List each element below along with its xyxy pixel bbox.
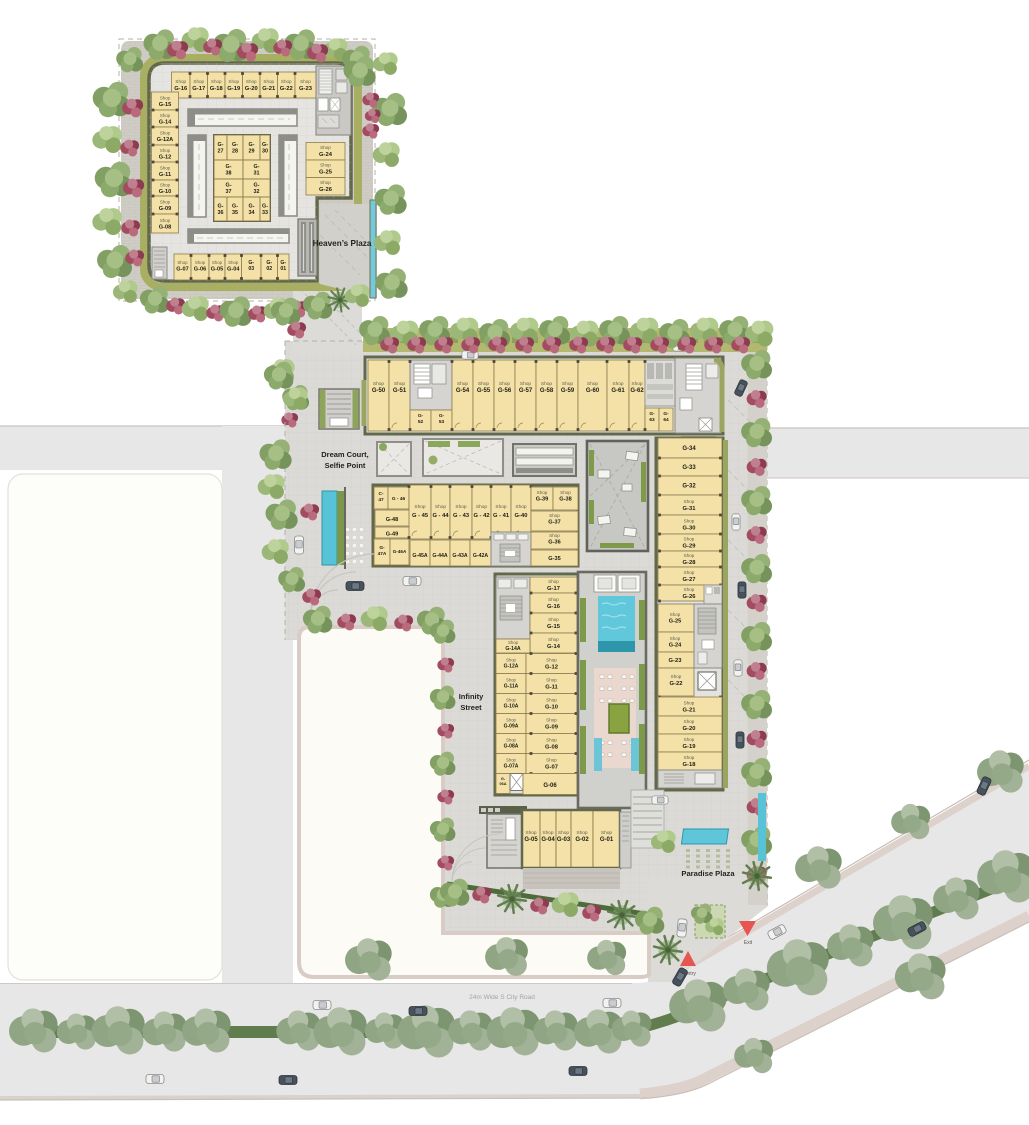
svg-text:63: 63 <box>649 417 655 423</box>
svg-text:Selfie Point: Selfie Point <box>325 461 366 470</box>
svg-text:Street: Street <box>460 703 482 712</box>
svg-text:G-49: G-49 <box>386 532 398 538</box>
svg-text:Shop: Shop <box>508 640 519 645</box>
svg-text:Shop: Shop <box>562 381 574 387</box>
svg-text:Shop: Shop <box>506 758 516 763</box>
svg-text:G-09: G-09 <box>545 724 559 730</box>
svg-text:G-44A: G-44A <box>432 553 448 559</box>
svg-text:Shop: Shop <box>548 617 559 622</box>
svg-text:G-18: G-18 <box>210 86 224 92</box>
svg-text:G-33: G-33 <box>682 465 696 471</box>
svg-text:G-38: G-38 <box>559 497 571 503</box>
svg-text:Shop: Shop <box>684 719 695 724</box>
svg-text:Shop: Shop <box>160 200 171 205</box>
svg-text:G-36: G-36 <box>548 540 560 546</box>
svg-text:27: 27 <box>218 148 224 154</box>
svg-text:G-: G- <box>226 164 232 170</box>
svg-text:G-17: G-17 <box>192 86 205 92</box>
svg-text:Shop: Shop <box>546 698 557 703</box>
svg-text:G-30: G-30 <box>683 525 696 531</box>
svg-text:G - 45: G - 45 <box>412 513 429 519</box>
svg-text:Shop: Shop <box>457 381 469 387</box>
svg-text:Shop: Shop <box>541 381 553 387</box>
svg-text:G - 41: G - 41 <box>493 513 510 519</box>
svg-text:Shop: Shop <box>195 260 206 265</box>
svg-text:Dream Court,: Dream Court, <box>321 450 369 459</box>
svg-text:G-46A: G-46A <box>393 549 407 554</box>
svg-text:Shop: Shop <box>414 504 426 510</box>
svg-text:Shop: Shop <box>506 678 516 683</box>
svg-text:Shop: Shop <box>684 701 695 706</box>
svg-text:G-11: G-11 <box>159 172 171 178</box>
svg-text:G-: G- <box>379 545 385 551</box>
svg-text:Shop: Shop <box>435 504 447 510</box>
svg-text:Shop: Shop <box>160 183 171 188</box>
svg-text:37: 37 <box>226 189 232 195</box>
svg-text:G-25: G-25 <box>669 619 681 625</box>
svg-text:Shop: Shop <box>495 504 507 510</box>
svg-text:Shop: Shop <box>546 678 557 683</box>
svg-text:Shop: Shop <box>546 718 557 723</box>
svg-text:G - 42: G - 42 <box>473 513 489 519</box>
svg-text:Shop: Shop <box>670 636 681 641</box>
svg-text:Shop: Shop <box>320 163 331 168</box>
svg-text:G-23: G-23 <box>299 86 313 92</box>
svg-text:G-39: G-39 <box>536 497 548 503</box>
svg-text:G-: G- <box>266 260 272 266</box>
svg-text:28: 28 <box>232 148 238 154</box>
svg-text:G-37: G-37 <box>548 520 560 526</box>
svg-text:Shop: Shop <box>601 830 613 836</box>
svg-text:G-14: G-14 <box>547 644 561 650</box>
svg-text:G-35: G-35 <box>548 556 560 562</box>
svg-text:G-50: G-50 <box>372 388 386 394</box>
svg-text:G-16: G-16 <box>547 604 561 610</box>
svg-text:G-: G- <box>232 142 238 148</box>
svg-text:Shop: Shop <box>549 513 560 518</box>
svg-text:G-58: G-58 <box>540 388 554 394</box>
svg-text:03: 03 <box>248 266 254 272</box>
svg-text:G-57: G-57 <box>519 388 533 394</box>
svg-text:G-: G- <box>249 204 255 210</box>
svg-text:G-17: G-17 <box>547 586 560 592</box>
svg-text:47A: 47A <box>378 551 387 557</box>
svg-text:G-07: G-07 <box>176 267 188 273</box>
svg-text:G-: G- <box>254 164 260 170</box>
svg-text:G-: G- <box>218 204 224 210</box>
svg-text:G-16: G-16 <box>174 86 188 92</box>
svg-text:G-24: G-24 <box>669 643 682 649</box>
svg-text:G-12A: G-12A <box>157 137 173 143</box>
svg-text:G-09A: G-09A <box>504 724 519 730</box>
svg-text:G-28: G-28 <box>683 560 697 566</box>
svg-text:G-11A: G-11A <box>504 684 519 690</box>
svg-text:Shop: Shop <box>320 180 331 185</box>
svg-text:G-40: G-40 <box>515 513 528 519</box>
svg-text:G-09: G-09 <box>159 206 171 212</box>
svg-text:G-59: G-59 <box>561 388 575 394</box>
svg-text:02: 02 <box>266 266 272 272</box>
svg-text:Shop: Shop <box>263 79 274 84</box>
svg-text:Shop: Shop <box>499 381 511 387</box>
svg-text:Shop: Shop <box>506 738 516 743</box>
svg-text:G-26: G-26 <box>319 187 333 193</box>
svg-text:53: 53 <box>439 419 445 425</box>
svg-text:G-05: G-05 <box>211 267 223 273</box>
svg-text:24m Wide S City Road: 24m Wide S City Road <box>469 994 535 1001</box>
svg-text:Shop: Shop <box>548 597 559 602</box>
svg-text:06A: 06A <box>500 782 507 786</box>
svg-text:G-02: G-02 <box>575 837 589 843</box>
svg-text:G-12: G-12 <box>545 664 558 670</box>
svg-text:G-: G- <box>649 411 655 417</box>
svg-text:G-42A: G-42A <box>473 553 489 559</box>
svg-text:G-18: G-18 <box>683 762 697 768</box>
svg-text:G-20: G-20 <box>245 86 258 92</box>
svg-text:Shop: Shop <box>546 658 557 663</box>
svg-text:G-: G- <box>226 183 232 189</box>
svg-text:G-22: G-22 <box>670 681 683 687</box>
svg-text:G-60: G-60 <box>586 388 600 394</box>
svg-text:32: 32 <box>254 189 260 195</box>
svg-text:Shop: Shop <box>160 148 171 153</box>
svg-text:G-: G- <box>254 183 260 189</box>
svg-text:G-: G- <box>418 413 424 419</box>
svg-text:Shop: Shop <box>558 830 570 836</box>
svg-text:G-25: G-25 <box>319 169 333 175</box>
svg-text:G-12: G-12 <box>159 155 171 161</box>
svg-text:G-31: G-31 <box>683 506 697 512</box>
svg-text:36: 36 <box>218 210 224 216</box>
svg-text:G-14: G-14 <box>159 120 172 126</box>
svg-text:G-22: G-22 <box>280 86 293 92</box>
svg-text:33: 33 <box>262 210 268 216</box>
svg-text:G-04: G-04 <box>227 267 240 273</box>
svg-text:Shop: Shop <box>670 612 681 617</box>
svg-text:Shop: Shop <box>560 490 571 495</box>
svg-text:34: 34 <box>249 210 255 216</box>
svg-text:Shop: Shop <box>631 381 643 387</box>
svg-text:G-08A: G-08A <box>504 744 519 750</box>
svg-text:Shop: Shop <box>177 260 188 265</box>
svg-text:Shop: Shop <box>211 79 222 84</box>
svg-text:G-56: G-56 <box>498 388 512 394</box>
svg-text:Shop: Shop <box>548 637 559 642</box>
svg-text:Shop: Shop <box>281 79 292 84</box>
svg-text:Shop: Shop <box>160 131 171 136</box>
svg-text:Shop: Shop <box>175 79 186 84</box>
svg-text:Shop: Shop <box>537 490 548 495</box>
svg-text:Shop: Shop <box>684 587 695 592</box>
svg-text:G-: G- <box>262 204 268 210</box>
svg-text:G-: G- <box>663 411 669 417</box>
svg-text:G-51: G-51 <box>393 388 407 394</box>
svg-text:Shop: Shop <box>160 166 171 171</box>
svg-text:G-45A: G-45A <box>412 553 428 559</box>
svg-text:Shop: Shop <box>684 570 695 575</box>
svg-text:52: 52 <box>418 419 424 425</box>
svg-text:G-: G- <box>280 260 286 266</box>
svg-text:G - 43: G - 43 <box>453 513 470 519</box>
svg-text:G-: G- <box>232 204 238 210</box>
svg-text:G-: G- <box>501 777 506 781</box>
svg-text:Shop: Shop <box>684 553 695 558</box>
svg-text:G-29: G-29 <box>683 543 697 549</box>
svg-text:Shop: Shop <box>455 504 467 510</box>
svg-text:G-: G- <box>262 142 268 148</box>
svg-text:G-26: G-26 <box>683 594 697 600</box>
svg-text:64: 64 <box>663 417 669 423</box>
svg-text:Shop: Shop <box>525 830 537 836</box>
svg-text:G-05: G-05 <box>524 837 538 843</box>
svg-text:G-15: G-15 <box>547 624 561 630</box>
svg-text:Exit: Exit <box>744 940 753 946</box>
svg-text:Shop: Shop <box>506 718 516 723</box>
svg-text:G-03: G-03 <box>557 837 571 843</box>
svg-text:G-: G- <box>249 142 255 148</box>
svg-text:Shop: Shop <box>684 737 695 742</box>
svg-text:G-19: G-19 <box>227 86 241 92</box>
svg-text:Shop: Shop <box>548 579 559 584</box>
svg-text:Shop: Shop <box>300 79 311 84</box>
svg-text:Shop: Shop <box>394 381 406 387</box>
svg-text:Shop: Shop <box>506 698 516 703</box>
svg-text:G-55: G-55 <box>477 388 491 394</box>
svg-text:31: 31 <box>254 170 260 176</box>
svg-text:38: 38 <box>226 170 232 176</box>
svg-text:G - 44: G - 44 <box>432 513 449 519</box>
svg-text:Shop: Shop <box>373 381 385 387</box>
svg-text:G-34: G-34 <box>682 446 696 452</box>
svg-text:G-11: G-11 <box>545 684 558 690</box>
svg-text:G-27: G-27 <box>683 577 696 583</box>
svg-text:G-12A: G-12A <box>504 664 519 670</box>
svg-text:G-06: G-06 <box>194 267 206 273</box>
svg-text:Shop: Shop <box>576 830 588 836</box>
svg-text:G-07: G-07 <box>545 764 558 770</box>
svg-text:G-43A: G-43A <box>452 553 468 559</box>
svg-text:29: 29 <box>249 148 255 154</box>
svg-text:G-: G- <box>218 142 224 148</box>
svg-text:G-04: G-04 <box>541 837 555 843</box>
svg-text:G-54: G-54 <box>456 388 470 394</box>
svg-text:Shop: Shop <box>246 79 257 84</box>
svg-text:G-20: G-20 <box>683 726 696 732</box>
svg-text:Shop: Shop <box>546 738 557 743</box>
svg-text:Infinity: Infinity <box>459 692 484 701</box>
svg-text:G-10: G-10 <box>159 189 171 195</box>
svg-text:Shop: Shop <box>542 830 554 836</box>
svg-text:Shop: Shop <box>160 96 171 101</box>
svg-text:Shop: Shop <box>549 533 560 538</box>
svg-text:G-61: G-61 <box>611 388 625 394</box>
svg-text:G-07A: G-07A <box>504 764 519 770</box>
svg-text:Shop: Shop <box>671 674 682 679</box>
svg-text:G - 46: G - 46 <box>392 496 406 502</box>
svg-text:G-23: G-23 <box>669 658 683 664</box>
svg-text:G-08: G-08 <box>159 225 171 231</box>
svg-text:Shop: Shop <box>320 145 331 150</box>
svg-text:G-08: G-08 <box>545 744 559 750</box>
svg-text:Shop: Shop <box>478 381 490 387</box>
svg-text:Shop: Shop <box>684 519 695 524</box>
svg-text:G-: G- <box>439 413 445 419</box>
svg-text:G-14A: G-14A <box>505 646 521 652</box>
svg-text:Shop: Shop <box>160 218 171 223</box>
svg-text:Shop: Shop <box>476 504 488 510</box>
svg-text:Shop: Shop <box>193 79 204 84</box>
svg-text:Shop: Shop <box>520 381 532 387</box>
svg-text:G-62: G-62 <box>630 388 644 394</box>
svg-text:Shop: Shop <box>160 113 171 118</box>
svg-text:Shop: Shop <box>612 381 624 387</box>
svg-text:Heaven’s Plaza: Heaven’s Plaza <box>313 239 372 248</box>
svg-text:G-01: G-01 <box>600 837 614 843</box>
svg-text:G-48: G-48 <box>386 517 398 523</box>
svg-text:G-10: G-10 <box>545 704 558 710</box>
svg-text:G-21: G-21 <box>262 86 276 92</box>
svg-text:G-21: G-21 <box>683 707 697 713</box>
svg-text:30: 30 <box>262 148 268 154</box>
svg-text:Shop: Shop <box>684 499 695 504</box>
svg-text:G-10A: G-10A <box>504 704 519 710</box>
svg-text:Shop: Shop <box>228 260 239 265</box>
svg-text:Shop: Shop <box>546 758 557 763</box>
svg-text:Shop: Shop <box>684 755 695 760</box>
svg-text:G-24: G-24 <box>319 152 333 158</box>
svg-text:Shop: Shop <box>587 381 599 387</box>
svg-text:Shop: Shop <box>228 79 239 84</box>
svg-text:Shop: Shop <box>515 504 527 510</box>
svg-text:Shop: Shop <box>684 537 695 542</box>
svg-text:G-06: G-06 <box>543 783 557 789</box>
svg-text:Shop: Shop <box>212 260 223 265</box>
svg-text:G-15: G-15 <box>159 102 171 108</box>
svg-text:G-32: G-32 <box>682 484 696 490</box>
svg-text:G-19: G-19 <box>683 744 697 750</box>
svg-text:01: 01 <box>280 266 286 272</box>
svg-text:C-: C- <box>378 491 383 497</box>
svg-text:Shop: Shop <box>506 658 516 663</box>
svg-text:47: 47 <box>378 497 384 503</box>
svg-text:G-: G- <box>248 260 254 266</box>
svg-text:35: 35 <box>232 210 238 216</box>
svg-text:Paradise Plaza: Paradise Plaza <box>681 869 735 878</box>
